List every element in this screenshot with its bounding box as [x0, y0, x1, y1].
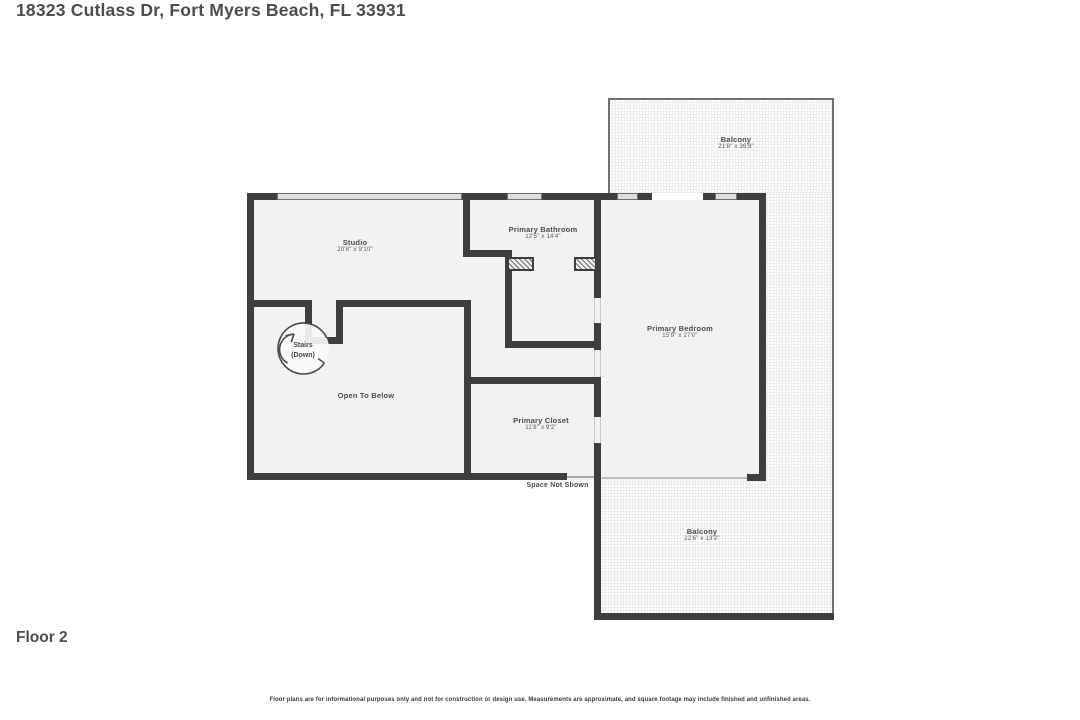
- balcony-bottom-area: [601, 480, 834, 613]
- wall: [463, 193, 470, 257]
- wall-corner-bottom-right: [747, 474, 766, 481]
- sliding-door-opening: [652, 193, 703, 200]
- window: [715, 193, 737, 200]
- vanity: [574, 257, 597, 271]
- door-jamb: [594, 298, 595, 323]
- wall: [594, 323, 601, 350]
- wall: [594, 377, 601, 417]
- room-label-primary-bedroom: Primary Bedroom 15'9" x 27'0": [620, 324, 740, 341]
- room-label-balcony-bottom: Balcony 22'6" x 13'2": [642, 527, 762, 544]
- wall: [703, 193, 715, 200]
- bedroom-balcony-line: [602, 477, 747, 479]
- wall: [594, 193, 601, 298]
- balcony-edge-right: [832, 98, 834, 613]
- room-label-primary-bathroom: Primary Bathroom 12'5" x 14'4": [483, 225, 603, 242]
- vanity: [507, 257, 534, 271]
- door-jamb: [600, 350, 601, 377]
- room-label-studio: Studio 20'8" x 9'10": [300, 238, 410, 255]
- window: [277, 193, 462, 200]
- wall-left-exterior: [247, 193, 254, 480]
- stairs-label: Stairs (Down): [276, 341, 330, 361]
- wall: [505, 341, 601, 348]
- door-jamb: [594, 350, 595, 377]
- window: [617, 193, 638, 200]
- space-cut-line: [567, 476, 594, 478]
- balcony-edge-left: [608, 98, 610, 193]
- wall: [464, 377, 601, 384]
- floor-plan-page: 18323 Cutlass Dr, Fort Myers Beach, FL 3…: [0, 0, 1080, 720]
- floor-plan: Stairs (Down) Balcony 21'8" x 36'8" Stud…: [0, 0, 1080, 720]
- wall: [542, 193, 617, 200]
- wall: [464, 300, 471, 480]
- balcony-side-strip: [766, 193, 833, 480]
- wall: [594, 443, 601, 620]
- stairs-direction: (Down): [276, 351, 330, 361]
- wall: [638, 193, 652, 200]
- room-label-balcony-top: Balcony 21'8" x 36'8": [676, 135, 796, 152]
- wall-bottom-exterior: [247, 473, 567, 480]
- wall-balcony-bottom: [594, 613, 834, 620]
- room-label-space-not-shown: Space Not Shown: [505, 482, 610, 491]
- wall-right-bedroom: [759, 193, 766, 481]
- wall: [336, 300, 471, 307]
- wall: [247, 300, 312, 307]
- balcony-edge-top: [608, 98, 834, 100]
- window: [507, 193, 542, 200]
- stairs-name: Stairs: [276, 341, 330, 351]
- room-label-open-to-below: Open To Below: [306, 391, 426, 400]
- room-label-primary-closet: Primary Closet 11'8" x 9'2": [481, 416, 601, 433]
- door-jamb: [600, 298, 601, 323]
